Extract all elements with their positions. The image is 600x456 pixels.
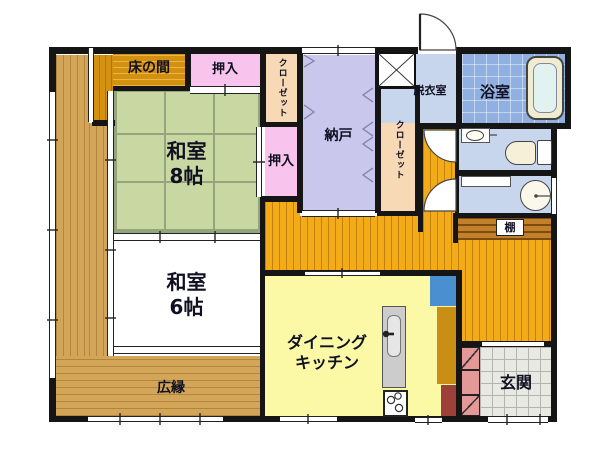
label-datsuishitsu: 脱衣室	[402, 83, 458, 99]
label-hiroen: 広縁	[140, 380, 202, 398]
storage-box-red	[441, 385, 456, 416]
shoe-cabinet-bottom	[460, 395, 480, 416]
label-closet-west: クローゼット	[271, 56, 291, 120]
window-kitchen-south2	[415, 417, 442, 423]
label-genkan: 玄関	[487, 373, 545, 393]
fusuma-washitsu-divider	[113, 233, 260, 241]
wall-tokonoma-bottom	[113, 86, 187, 91]
wall-oshiire-east-bottom	[260, 196, 300, 202]
wall-left-top	[49, 47, 56, 92]
washbasin-counter	[461, 176, 511, 187]
fusuma-oshiire-top	[190, 86, 260, 94]
window-west	[49, 92, 56, 378]
label-nando: 納戸	[302, 128, 375, 146]
sliding-door-nando	[302, 210, 375, 217]
shoji-tokonoma-west	[88, 48, 94, 122]
kitchen-sink-icon	[387, 315, 401, 357]
wall-washbasin-bottom	[453, 213, 557, 218]
toilet-tank	[537, 140, 552, 165]
wall-oshiire-right	[260, 47, 266, 127]
corridor-east	[423, 129, 458, 270]
floor-plan: 床の間 押入 クローゼット 和室8帖 押入 納戸 クローゼット 脱衣室 浴室 和…	[0, 0, 600, 456]
label-dining-kitchen: ダイニングキッチン	[268, 330, 386, 376]
tall-cabinet-icon	[437, 307, 456, 384]
corridor-center	[300, 216, 423, 270]
veranda-floor-west	[56, 55, 89, 356]
label-closet-center: クローゼット	[388, 93, 408, 207]
window-washbasin-east	[551, 178, 557, 214]
sliding-door-kitchen	[305, 271, 380, 276]
label-oshiire-top: 押入	[190, 61, 260, 79]
bathtub-icon	[526, 56, 564, 120]
label-washitsu8: 和室8帖	[113, 133, 260, 195]
wall-closet-west-bottom	[262, 122, 300, 127]
veranda-floor-west-inner	[89, 123, 107, 356]
corridor-west	[265, 201, 300, 270]
label-yokushitsu: 浴室	[462, 82, 528, 102]
window-veranda-south	[88, 416, 223, 422]
corridor-entry	[458, 240, 551, 341]
stove-icon	[383, 390, 408, 417]
wall-kitchen-left	[260, 198, 265, 422]
wall-bath-bottom	[418, 123, 571, 129]
shoe-cabinet-top	[460, 347, 480, 370]
bathtub-inner	[533, 63, 557, 113]
wall-shelf-left	[453, 213, 458, 243]
genkan-step	[482, 342, 544, 346]
back-door-opening	[418, 47, 456, 54]
label-washitsu6: 和室6帖	[113, 264, 260, 326]
back-door-swing-icon	[420, 14, 456, 50]
hand-sink-icon	[466, 130, 484, 141]
wall-closet-center-bottom	[377, 211, 420, 216]
wall-bath-right	[565, 47, 571, 129]
toilet-bowl-icon	[505, 141, 536, 165]
window-kitchen-south1	[280, 416, 337, 422]
refrigerator-icon	[430, 276, 456, 306]
wall-right	[551, 123, 557, 422]
label-tana: 棚	[496, 219, 524, 236]
shoe-cabinet-middle	[460, 370, 480, 395]
shoji-washitsu6-south	[113, 346, 260, 354]
label-oshiire-east: 押入	[265, 153, 297, 171]
wall-closet-center-right	[415, 88, 420, 213]
label-tokonoma: 床の間	[113, 60, 185, 78]
wall-nando-right	[375, 47, 381, 213]
washbasin-icon	[520, 180, 551, 211]
entrance-door	[488, 416, 548, 423]
window-nando-top	[302, 47, 375, 54]
